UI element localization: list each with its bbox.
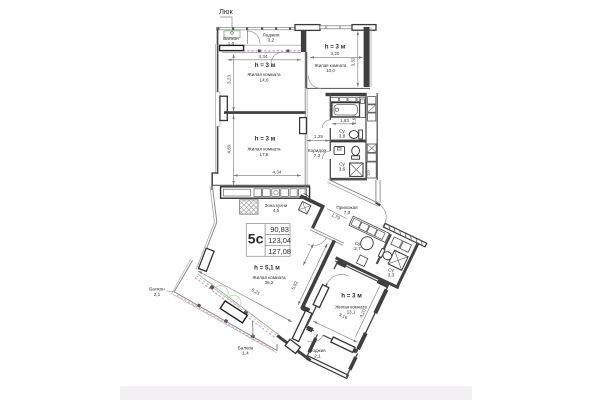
svg-text:2,1: 2,1 <box>154 292 161 297</box>
svg-text:5с: 5с <box>248 231 264 247</box>
svg-text:3,32: 3,32 <box>350 57 355 66</box>
svg-text:3,23: 3,23 <box>227 75 232 84</box>
svg-text:3,3: 3,3 <box>388 272 395 277</box>
svg-text:7,0: 7,0 <box>344 210 351 215</box>
svg-text:2,7: 2,7 <box>354 246 361 251</box>
svg-text:36,2: 36,2 <box>265 280 274 285</box>
svg-text:10,0: 10,0 <box>326 68 335 73</box>
svg-text:14,0: 14,0 <box>260 77 269 82</box>
svg-text:13,1: 13,1 <box>347 309 356 314</box>
svg-text:123,04: 123,04 <box>268 236 291 245</box>
svg-text:3,20: 3,20 <box>331 51 340 56</box>
svg-text:1,29: 1,29 <box>314 134 323 139</box>
svg-text:1,83: 1,83 <box>340 118 349 123</box>
svg-text:h = 3 м: h = 3 м <box>325 44 346 51</box>
svg-text:2,66: 2,66 <box>351 115 356 124</box>
svg-text:Люк: Люк <box>219 7 234 16</box>
svg-text:h = 3 м: h = 3 м <box>341 293 362 300</box>
svg-text:4,34: 4,34 <box>259 54 268 59</box>
svg-text:17,6: 17,6 <box>260 152 269 157</box>
svg-text:127,08: 127,08 <box>268 247 291 256</box>
svg-text:3,6: 3,6 <box>339 167 346 172</box>
svg-text:3,8: 3,8 <box>339 134 346 139</box>
svg-text:3,2: 3,2 <box>268 38 275 43</box>
svg-text:2,0: 2,0 <box>365 169 370 175</box>
svg-text:h = 5,1 м: h = 5,1 м <box>254 264 280 271</box>
svg-text:h = 3 м: h = 3 м <box>255 62 276 69</box>
svg-text:h = 3 м: h = 3 м <box>255 136 276 143</box>
svg-text:90,83: 90,83 <box>270 225 289 234</box>
svg-text:4,34: 4,34 <box>273 169 282 174</box>
svg-text:1,4: 1,4 <box>242 351 249 356</box>
svg-text:7,3: 7,3 <box>314 153 321 158</box>
svg-text:4,69: 4,69 <box>227 144 232 153</box>
svg-text:4,6: 4,6 <box>273 208 280 213</box>
svg-text:2,1: 2,1 <box>314 353 321 358</box>
